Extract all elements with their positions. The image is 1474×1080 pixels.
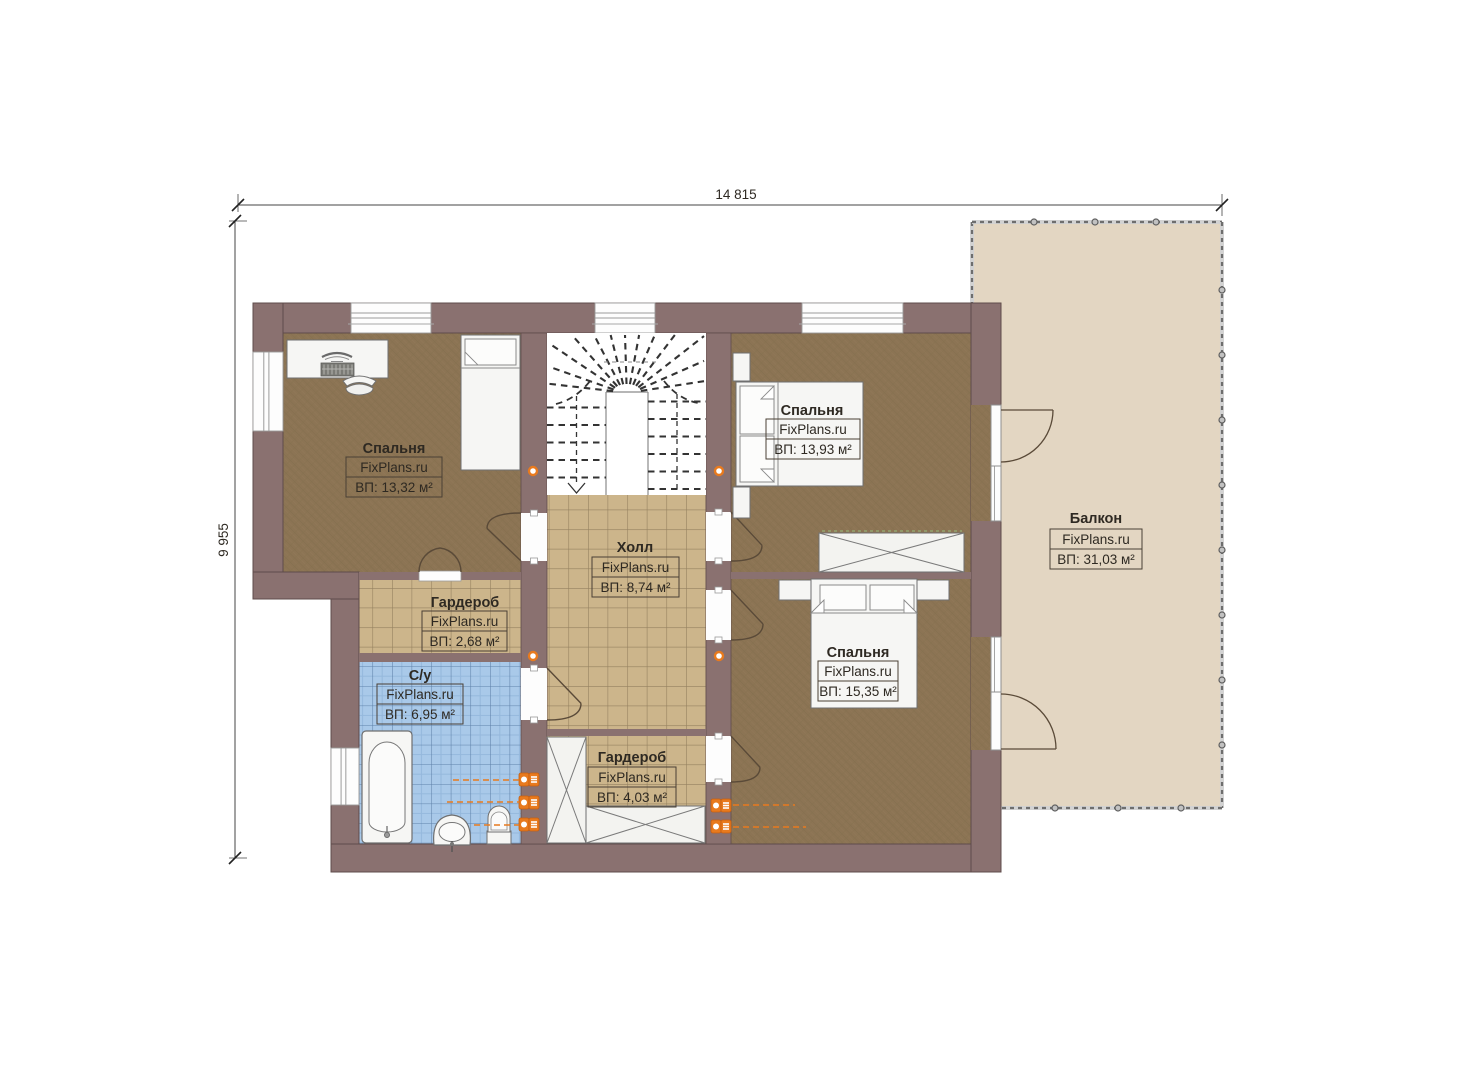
svg-text:FixPlans.ru: FixPlans.ru	[1062, 532, 1130, 547]
svg-text:ВП: 13,32 м²: ВП: 13,32 м²	[355, 480, 433, 495]
svg-text:С/у: С/у	[409, 668, 432, 684]
svg-text:ВП: 2,68 м²: ВП: 2,68 м²	[429, 634, 500, 649]
svg-text:ВП: 15,35 м²: ВП: 15,35 м²	[819, 684, 897, 699]
svg-text:Гардероб: Гардероб	[598, 750, 667, 766]
svg-text:Балкон: Балкон	[1070, 511, 1122, 527]
svg-text:ВП: 6,95 м²: ВП: 6,95 м²	[385, 707, 456, 722]
svg-text:9 955: 9 955	[216, 523, 231, 557]
svg-text:FixPlans.ru: FixPlans.ru	[824, 664, 892, 679]
svg-text:FixPlans.ru: FixPlans.ru	[360, 460, 428, 475]
svg-text:ВП: 13,93 м²: ВП: 13,93 м²	[774, 442, 852, 457]
svg-text:ВП: 4,03 м²: ВП: 4,03 м²	[597, 790, 668, 805]
svg-text:Гардероб: Гардероб	[431, 595, 500, 611]
svg-text:Холл: Холл	[617, 540, 653, 556]
svg-text:ВП: 31,03 м²: ВП: 31,03 м²	[1057, 552, 1135, 567]
svg-text:FixPlans.ru: FixPlans.ru	[779, 422, 847, 437]
svg-text:FixPlans.ru: FixPlans.ru	[386, 687, 454, 702]
svg-text:FixPlans.ru: FixPlans.ru	[598, 770, 666, 785]
svg-text:Спальня: Спальня	[363, 441, 426, 457]
svg-text:Спальня: Спальня	[781, 403, 844, 419]
svg-text:14 815: 14 815	[715, 187, 756, 202]
svg-text:FixPlans.ru: FixPlans.ru	[602, 560, 670, 575]
svg-text:ВП: 8,74 м²: ВП: 8,74 м²	[600, 580, 671, 595]
svg-text:Спальня: Спальня	[827, 645, 890, 661]
svg-text:FixPlans.ru: FixPlans.ru	[431, 614, 499, 629]
